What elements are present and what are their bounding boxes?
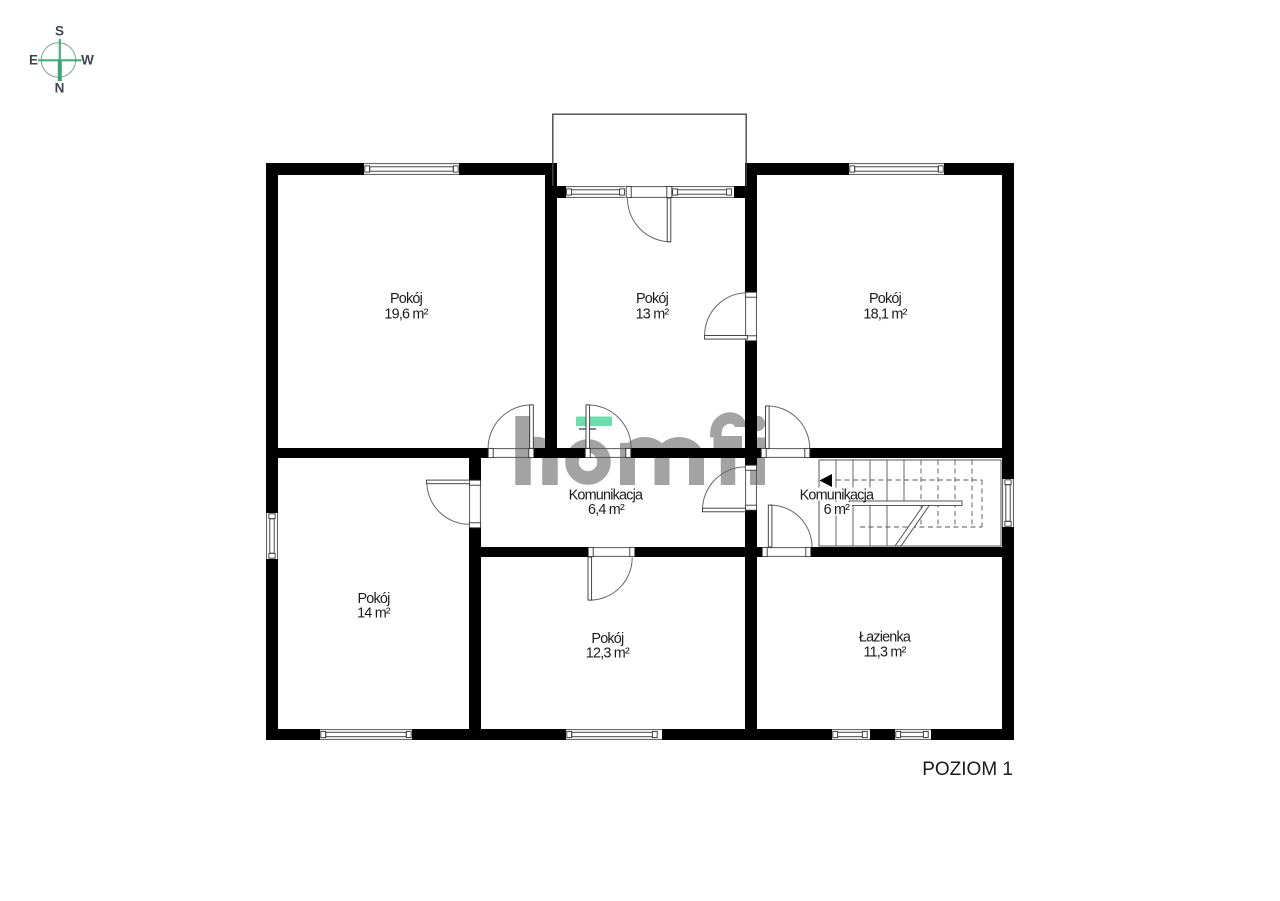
svg-text:Pokój: Pokój — [636, 291, 669, 307]
svg-text:Komunikacja: Komunikacja — [569, 487, 643, 503]
svg-text:Pokój: Pokój — [390, 291, 423, 307]
svg-text:6 m²: 6 m² — [824, 502, 851, 518]
svg-text:14 m²: 14 m² — [357, 606, 391, 622]
svg-text:W: W — [81, 53, 94, 68]
svg-text:Pokój: Pokój — [869, 291, 902, 307]
svg-text:S: S — [55, 24, 64, 39]
svg-text:Pokój: Pokój — [591, 631, 624, 647]
svg-text:6,4 m²: 6,4 m² — [588, 502, 625, 518]
svg-text:Łazienka: Łazienka — [859, 630, 911, 646]
svg-text:POZIOM 1: POZIOM 1 — [922, 759, 1013, 780]
svg-text:12,3 m²: 12,3 m² — [586, 646, 630, 662]
svg-text:11,3 m²: 11,3 m² — [863, 645, 906, 661]
svg-text:13 m²: 13 m² — [636, 306, 670, 322]
svg-text:18,1 m²: 18,1 m² — [863, 306, 907, 322]
svg-text:Komunikacja: Komunikacja — [800, 487, 874, 503]
svg-text:19,6 m²: 19,6 m² — [384, 306, 428, 322]
svg-text:N: N — [55, 81, 65, 96]
svg-text:E: E — [29, 53, 38, 68]
